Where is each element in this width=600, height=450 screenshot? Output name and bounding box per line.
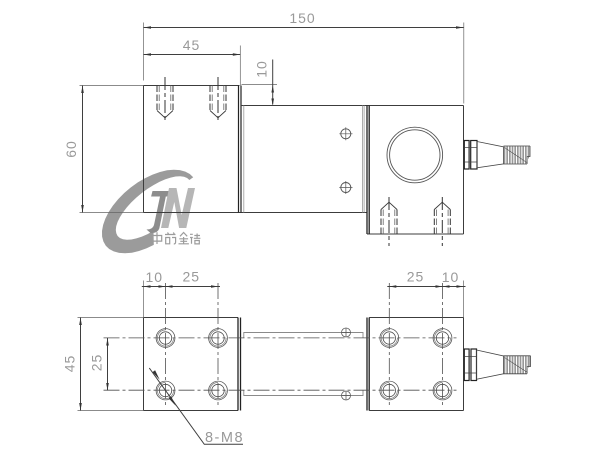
svg-text:25: 25 [183,269,201,285]
svg-text:8-M8: 8-M8 [205,430,244,446]
svg-text:45: 45 [62,355,78,373]
svg-text:10: 10 [442,269,460,285]
svg-text:45: 45 [183,37,201,53]
svg-text:25: 25 [407,269,425,285]
svg-text:10: 10 [254,60,270,78]
svg-text:60: 60 [63,140,79,158]
svg-text:10: 10 [146,269,164,285]
svg-text:150: 150 [289,10,315,26]
svg-text:25: 25 [89,354,105,372]
